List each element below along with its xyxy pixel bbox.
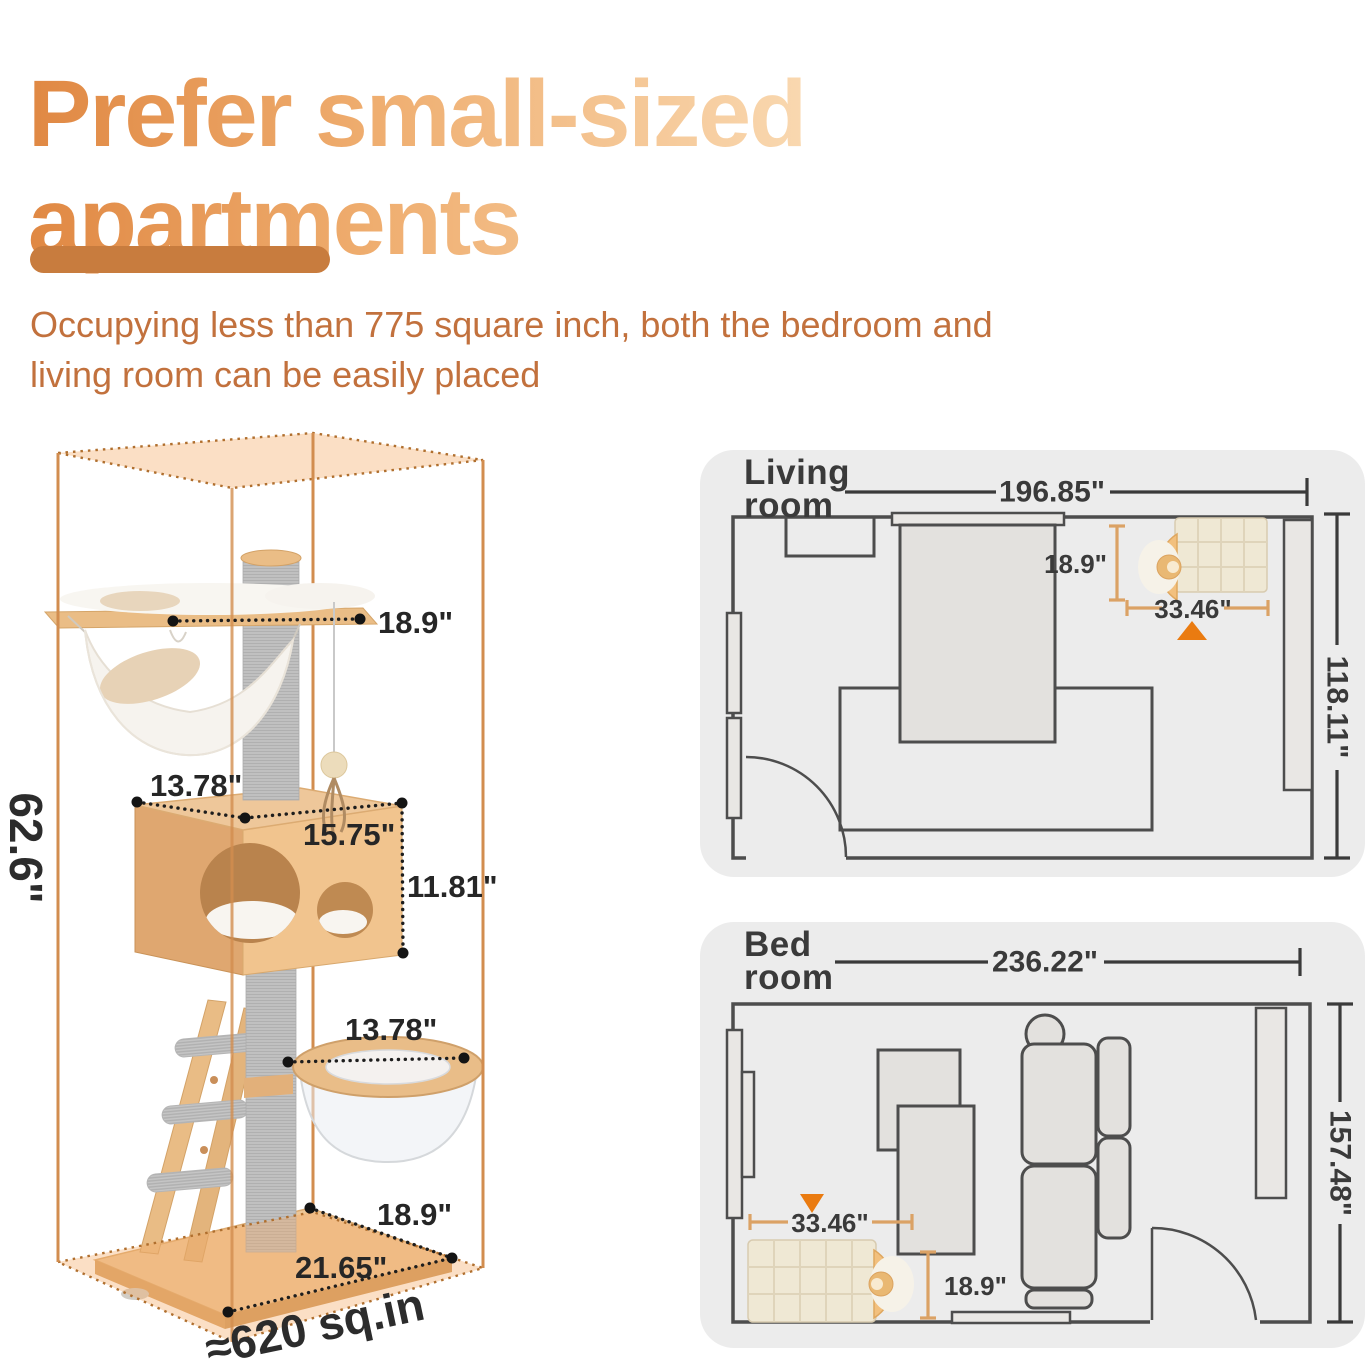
title-divider-bar [30,246,330,273]
svg-text:18.9": 18.9" [944,1271,1007,1301]
svg-text:33.46": 33.46" [791,1208,868,1238]
svg-text:196.85": 196.85" [999,476,1105,509]
bedroom-doormat [952,1312,1070,1323]
bedroom-window-1 [727,1030,742,1218]
svg-text:33.46": 33.46" [1154,594,1231,624]
living-window-2 [727,718,741,818]
svg-text:18.9": 18.9" [1044,549,1107,579]
bedroom-shelf [1256,1008,1286,1198]
dim-top-width: 18.9" [378,605,453,640]
bedroom-window-2 [742,1072,754,1177]
svg-text:118.11": 118.11" [1321,656,1354,759]
dim-condo-depth: 13.78" [150,768,242,803]
living-room-depth-dimension: 118.11" [1321,514,1354,858]
bedroom-door-gap [1150,1318,1260,1327]
living-bed [900,525,1055,742]
svg-text:157.48": 157.48" [1324,1110,1357,1216]
bedroom-door-arc [1152,1228,1256,1320]
dim-base-depth: 18.9" [377,1197,452,1232]
page-subtitle: Occupying less than 775 square inch, bot… [30,300,993,400]
bedroom-title-line2: room [744,961,834,994]
living-shelf [1284,520,1312,790]
cat-tree-figure: 18.9" 13.78" 15.75" 11.81" 13.78" 18.9" … [0,430,690,1371]
page-title-line1: Prefer small-sized [28,60,805,168]
subtitle-line1: Occupying less than 775 square inch, bot… [30,300,993,350]
dim-tree-height: 62.6" [0,792,52,903]
bounding-box-top-face [58,433,483,488]
living-room-title: Living room [744,456,850,522]
bedroom-tree-depth-dimension: 18.9" [920,1252,1007,1318]
svg-text:236.22": 236.22" [992,946,1098,979]
living-room-card: Living room 196.85" 118.11" [700,450,1365,877]
living-tree-width-dimension: 33.46" [1127,594,1268,624]
page-title: Prefer small-sized apartments [28,60,805,276]
bedroom-title-line1: Bed [744,928,834,961]
living-window-1 [727,613,741,713]
lower-scratching-post [246,958,296,1252]
bedroom-tree-width-dimension: 33.46" [750,1208,912,1238]
bedroom-cat-tree-topview [748,1240,914,1322]
subtitle-line2: living room can be easily placed [30,350,993,400]
dim-condo-height: 11.81" [407,869,498,904]
tree-ladder [140,1000,262,1262]
bedroom-title: Bed room [744,928,834,994]
product-infographic: Prefer small-sized apartments Occupying … [0,0,1372,1371]
dim-condo-width: 15.75" [303,817,395,852]
living-room-title-line1: Living [744,456,850,489]
living-door-gap [746,853,846,862]
living-room-title-line2: room [744,489,850,522]
bedroom-card: Bed room 236.22" 157.48" [700,922,1365,1348]
bedroom-sofa [1022,1038,1130,1308]
living-room-width-dimension: 196.85" [845,476,1307,509]
top-platform [45,583,377,628]
living-cat-tree-topview [1138,518,1267,600]
bedroom-depth-dimension: 157.48" [1324,1004,1357,1322]
bedroom-width-dimension: 236.22" [835,946,1300,979]
bedroom-table-2 [898,1106,974,1254]
dim-capsule-width: 13.78" [345,1012,437,1047]
dim-base-width: 21.65" [295,1250,387,1285]
living-door-arc [746,757,846,857]
living-bed-headboard [892,513,1064,525]
